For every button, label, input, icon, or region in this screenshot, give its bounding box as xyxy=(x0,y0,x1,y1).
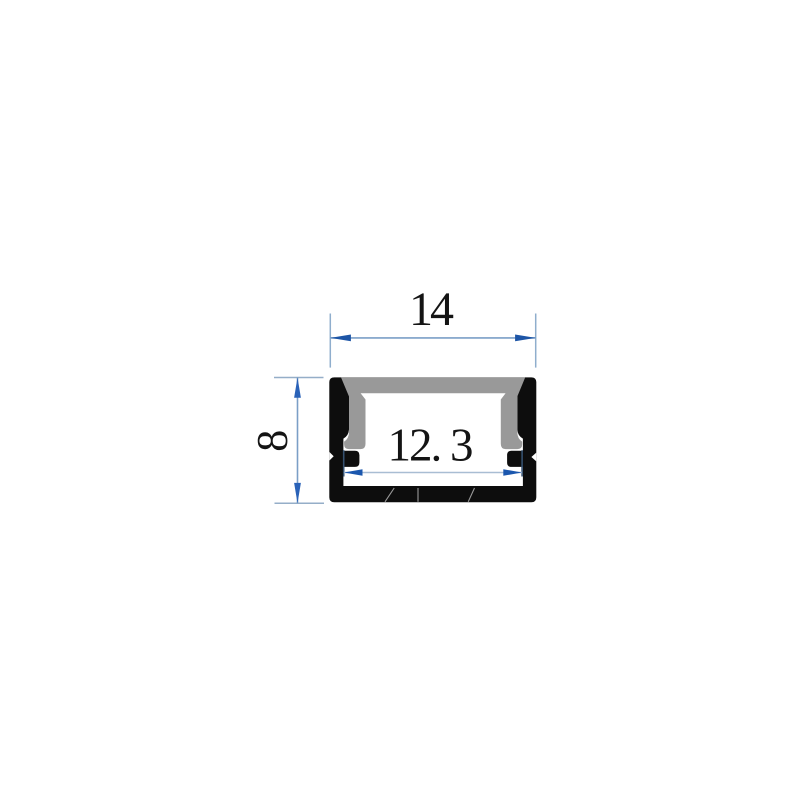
svg-text:12. 3: 12. 3 xyxy=(388,420,473,472)
svg-text:8: 8 xyxy=(248,430,297,452)
svg-text:14: 14 xyxy=(409,283,454,336)
